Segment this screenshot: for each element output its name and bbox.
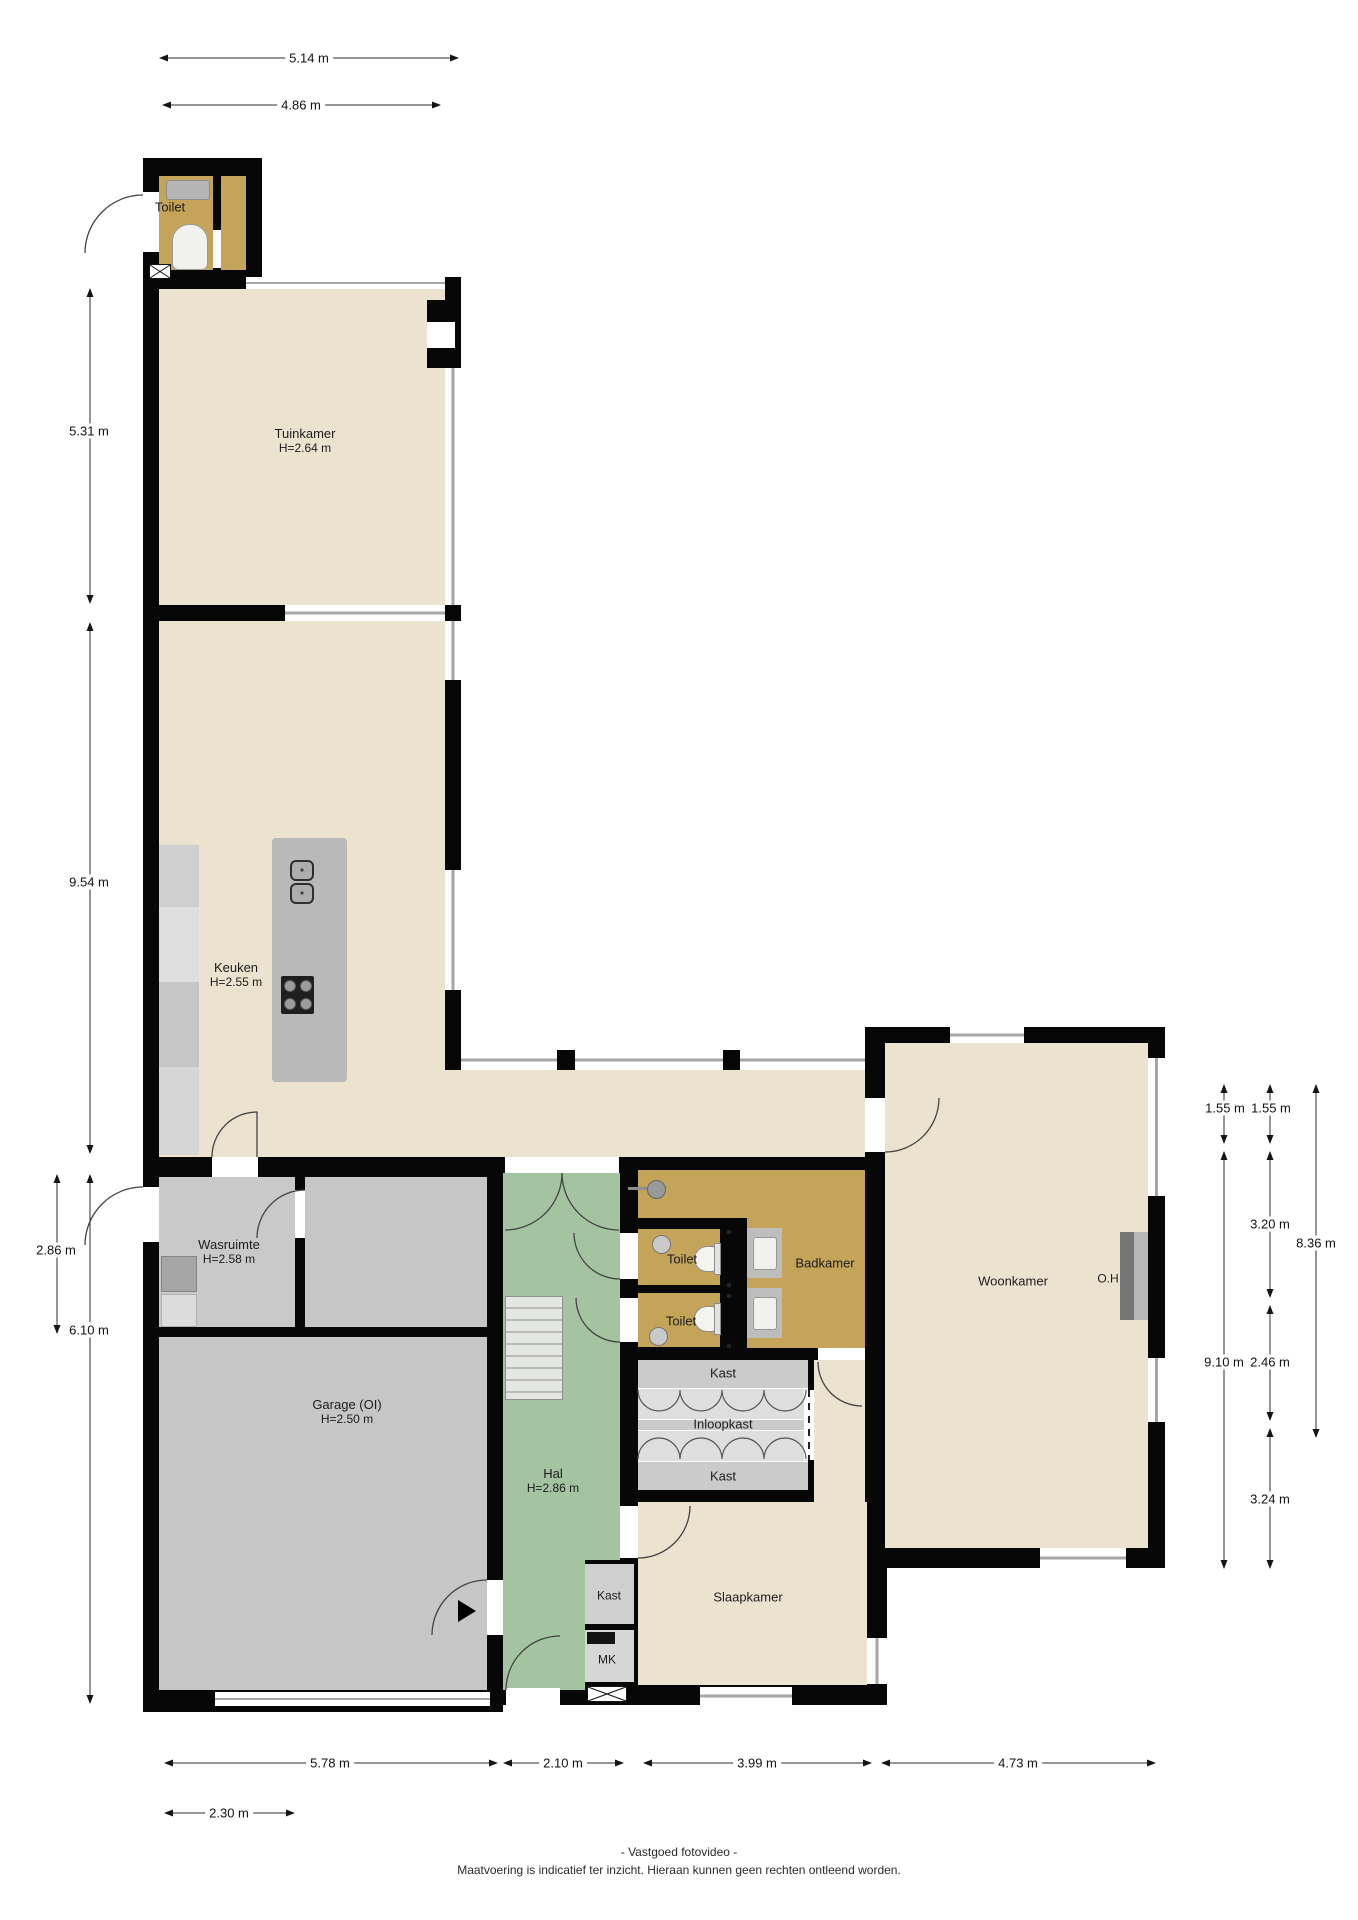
passage-dashed bbox=[804, 1390, 814, 1460]
dim-left-4: 6.10 m bbox=[65, 1323, 113, 1338]
kitchen-counter bbox=[159, 845, 199, 907]
entrance-arrow bbox=[458, 1600, 476, 1622]
corridor bbox=[461, 1070, 865, 1157]
kitchen-sink bbox=[290, 883, 314, 904]
dim-left-3: 2.86 m bbox=[32, 1243, 80, 1258]
toilet-tank bbox=[714, 1243, 721, 1275]
dim-left-1: 5.31 m bbox=[65, 424, 113, 439]
door-opening bbox=[427, 322, 455, 348]
stove bbox=[281, 976, 314, 1014]
window bbox=[445, 621, 461, 680]
vestibule bbox=[814, 1360, 865, 1502]
window bbox=[445, 870, 461, 990]
wall-post bbox=[723, 1050, 740, 1070]
room-garage bbox=[305, 1177, 487, 1327]
room-label-slaapkamer: Slaapkamer bbox=[713, 1590, 782, 1605]
room-label-garage: Garage (OI)H=2.50 m bbox=[312, 1397, 381, 1427]
toilet-fixture bbox=[694, 1306, 716, 1332]
dim-bottom-3: 3.99 m bbox=[733, 1756, 781, 1771]
dim-right-7: 3.24 m bbox=[1246, 1492, 1294, 1507]
room-label-kast-hal: Kast bbox=[597, 1589, 621, 1604]
kitchen-counter bbox=[159, 907, 199, 982]
ventilation-icon bbox=[149, 264, 171, 279]
ventilation-icon bbox=[587, 1686, 627, 1702]
kitchen-counter bbox=[159, 982, 199, 1067]
room-label-tuinkamer: TuinkamerH=2.64 m bbox=[275, 426, 336, 456]
room-label-toilet1: Toilet bbox=[667, 1252, 697, 1267]
room-label-keuken: KeukenH=2.55 m bbox=[210, 960, 262, 990]
door-opening bbox=[865, 1098, 885, 1152]
window bbox=[1040, 1548, 1126, 1568]
sink bbox=[166, 180, 210, 200]
dim-bottom-1: 5.78 m bbox=[306, 1756, 354, 1771]
fireplace bbox=[1120, 1232, 1134, 1320]
dim-top-1: 5.14 m bbox=[285, 51, 333, 66]
room-garage-main bbox=[159, 1337, 487, 1690]
room-hal-lower bbox=[503, 1560, 585, 1690]
wardrobe-doors bbox=[638, 1430, 808, 1462]
dim-right-2: 1.55 m bbox=[1247, 1101, 1295, 1116]
wash-basin bbox=[753, 1297, 777, 1330]
hand-basin bbox=[649, 1327, 668, 1346]
door-opening bbox=[213, 230, 221, 268]
dim-bottom-2: 2.10 m bbox=[539, 1756, 587, 1771]
room-label-toilet-top: Toilet bbox=[155, 200, 185, 215]
footer-disclaimer: Maatvoering is indicatief ter inzicht. H… bbox=[457, 1863, 901, 1877]
room-label-toilet2: Toilet bbox=[666, 1314, 696, 1329]
toilet-tank bbox=[714, 1303, 721, 1335]
keuken-corridor-opening bbox=[445, 1070, 461, 1157]
window bbox=[445, 368, 461, 605]
dim-right-4: 8.36 m bbox=[1292, 1236, 1340, 1251]
vestibule-opening bbox=[814, 1490, 865, 1502]
door-opening bbox=[212, 1157, 258, 1177]
dryer bbox=[161, 1294, 197, 1327]
window bbox=[700, 1687, 792, 1705]
door-opening bbox=[620, 1506, 638, 1558]
shower-head bbox=[647, 1180, 666, 1199]
room-label-hal: HalH=2.86 m bbox=[527, 1466, 579, 1496]
room-label-mk: MK bbox=[598, 1653, 616, 1668]
door-opening bbox=[295, 1190, 305, 1238]
room-label-woonkamer: Woonkamer bbox=[978, 1274, 1048, 1289]
washing-machine bbox=[161, 1256, 197, 1292]
dim-top-2: 4.86 m bbox=[277, 98, 325, 113]
label-oh: O.H bbox=[1097, 1272, 1118, 1287]
floorplan: Toilet TuinkamerH=2.64 m KeukenH=2.55 m … bbox=[0, 0, 1358, 1920]
window bbox=[1148, 1058, 1165, 1196]
dim-right-3: 3.20 m bbox=[1246, 1217, 1294, 1232]
room-label-wasruimte: WasruimteH=2.58 m bbox=[198, 1237, 260, 1267]
footer-brand: - Vastgoed fotovideo - bbox=[621, 1845, 738, 1859]
wash-basin bbox=[753, 1237, 777, 1270]
wall-post bbox=[557, 1050, 575, 1070]
room-woonkamer bbox=[885, 1043, 1148, 1548]
toilet-fixture bbox=[172, 224, 208, 270]
dim-bottom-4: 4.73 m bbox=[994, 1756, 1042, 1771]
window bbox=[246, 277, 445, 289]
door-opening bbox=[620, 1233, 638, 1279]
door-opening bbox=[487, 1580, 503, 1635]
door-opening bbox=[620, 1298, 638, 1342]
window-band-corridor bbox=[461, 1050, 865, 1070]
dim-bottom-5: 2.30 m bbox=[205, 1806, 253, 1821]
room-toilet-top-duct bbox=[221, 176, 246, 270]
garage-door bbox=[215, 1692, 490, 1706]
toilet-fixture bbox=[694, 1246, 716, 1272]
window bbox=[950, 1027, 1024, 1043]
room-label-kast-bottom: Kast bbox=[710, 1469, 736, 1484]
double-door-opening bbox=[505, 1157, 619, 1173]
dim-right-1: 1.55 m bbox=[1201, 1101, 1249, 1116]
staircase bbox=[505, 1296, 563, 1400]
room-label-kast-top: Kast bbox=[710, 1366, 736, 1381]
wardrobe-doors bbox=[638, 1388, 808, 1420]
window bbox=[1148, 1358, 1165, 1422]
kitchen-counter bbox=[159, 1067, 199, 1155]
room-label-badkamer: Badkamer bbox=[795, 1256, 854, 1271]
window bbox=[867, 1638, 887, 1684]
room-label-inloopkast: Inloopkast bbox=[693, 1417, 752, 1432]
sliding-door bbox=[285, 605, 445, 621]
dim-right-6: 2.46 m bbox=[1246, 1355, 1294, 1370]
front-door-opening bbox=[506, 1688, 560, 1705]
kitchen-sink bbox=[290, 860, 314, 881]
room-badkamer-strip bbox=[638, 1170, 865, 1218]
door-opening bbox=[143, 1187, 159, 1242]
meter-cabinet bbox=[587, 1632, 615, 1644]
dim-right-5: 9.10 m bbox=[1200, 1355, 1248, 1370]
dim-left-2: 9.54 m bbox=[65, 875, 113, 890]
fireplace bbox=[1134, 1232, 1148, 1320]
